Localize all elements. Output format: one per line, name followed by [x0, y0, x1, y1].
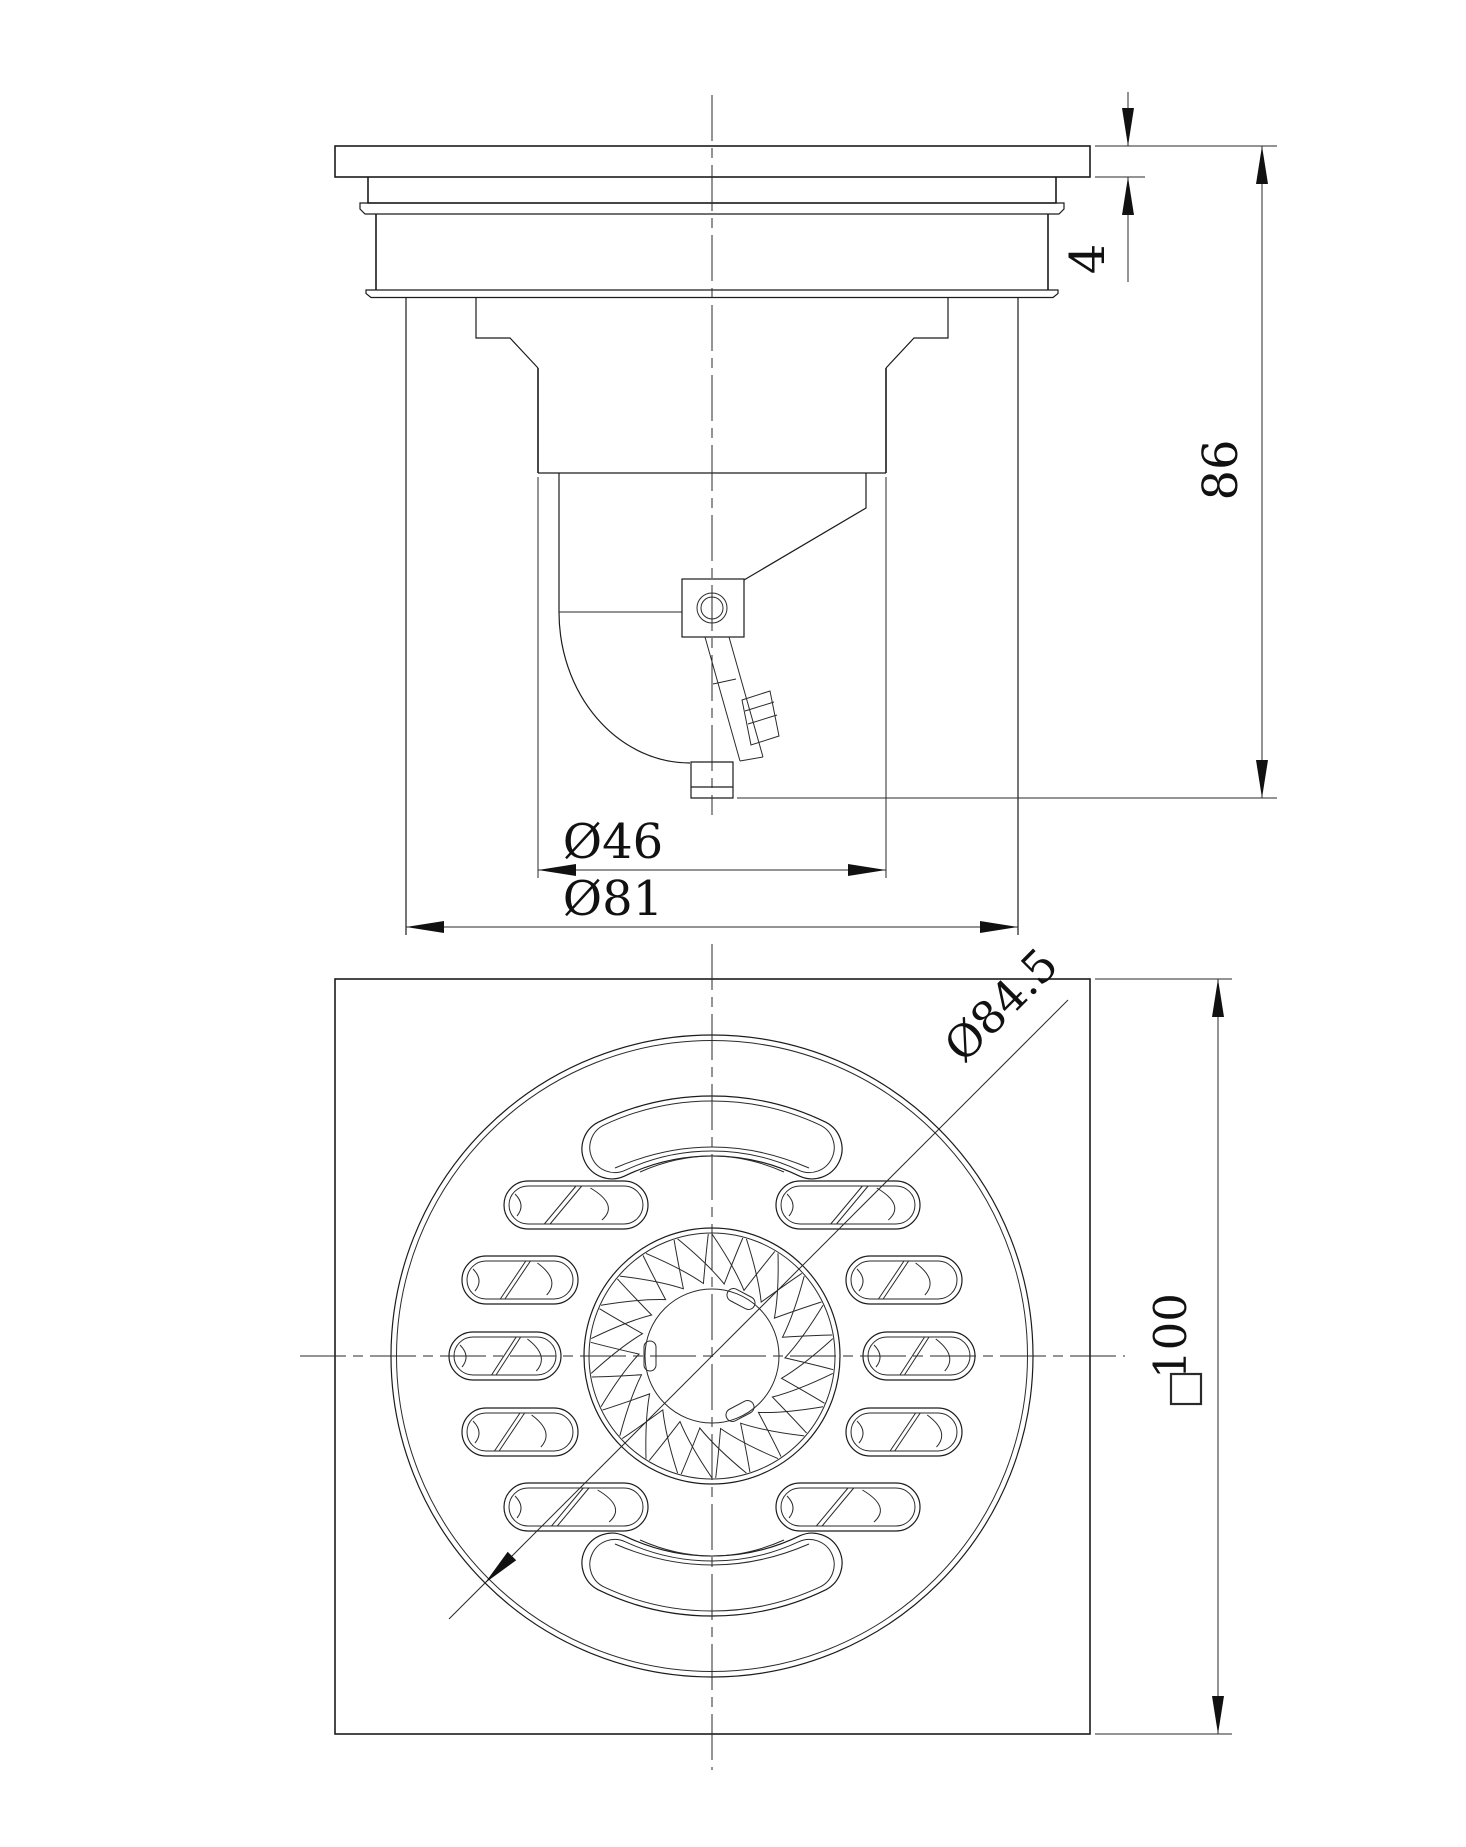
dim-outlet-diameter-label: Ø46 — [563, 814, 663, 870]
slot-capsule-inner — [467, 1261, 573, 1299]
slot-capsule — [504, 1483, 648, 1531]
slot-capsule-inner — [851, 1261, 957, 1299]
impeller-blade — [622, 1410, 677, 1473]
arrowhead — [848, 864, 886, 876]
dim-overall-height-label: 86 — [1193, 439, 1249, 500]
slot-fragment-curve — [874, 1339, 950, 1371]
extension-lines — [1095, 146, 1277, 177]
dim-body-diameter: Ø81 — [406, 871, 1018, 933]
impeller-blade — [712, 1234, 775, 1290]
impeller-blade — [601, 1255, 666, 1305]
impeller-blade — [649, 1422, 712, 1478]
arrowhead — [1256, 146, 1268, 184]
slot-fragment-edge — [552, 1488, 589, 1526]
arm-counterweight — [742, 691, 779, 745]
elbow-arc — [559, 612, 690, 763]
dim-overall-height: 86 — [737, 146, 1277, 798]
arrowhead — [1256, 760, 1268, 798]
slot-fragment-edge — [544, 1186, 581, 1224]
plan-centerlines — [300, 944, 1125, 1770]
dim-grate-diameter: Ø84.5 — [449, 938, 1068, 1619]
drawing-sheet: 4 86 Ø46 Ø81 — [0, 0, 1466, 1847]
slot-fragment-curve — [515, 1188, 608, 1220]
impeller-blade — [603, 1394, 650, 1459]
dim-flange-thickness-label: 4 — [1060, 244, 1116, 275]
slot-fragment-curve — [473, 1263, 552, 1295]
pivot-block — [682, 579, 744, 637]
slot-fragment-curve — [515, 1490, 616, 1522]
arrowhead — [1122, 108, 1134, 146]
impeller-blade — [758, 1407, 823, 1457]
dim-flange-thickness: 4 — [1060, 92, 1277, 282]
arrowhead — [406, 921, 444, 933]
slot-fragment-curve — [857, 1263, 930, 1295]
slot-capsule — [776, 1483, 920, 1531]
slot-capsule-inner — [781, 1186, 915, 1224]
impeller-blade — [746, 1239, 801, 1302]
slot-fragment-curve — [857, 1415, 942, 1447]
arrowhead — [1212, 1696, 1224, 1734]
drawing-canvas: 4 86 Ø46 Ø81 — [0, 0, 1466, 1847]
slot-fragment-curve — [787, 1188, 895, 1220]
arrowhead — [1122, 177, 1134, 215]
plan-view: Ø84.5 100 — [300, 938, 1232, 1770]
slot-fragment-curve — [787, 1490, 880, 1522]
slot-fragment-curve — [460, 1339, 541, 1371]
slot-fragment-curve — [473, 1415, 546, 1447]
arrowhead — [1212, 979, 1224, 1017]
dim-plate-size-label: 100 — [1144, 1293, 1197, 1379]
slot-capsule — [776, 1181, 920, 1229]
impeller-blade — [774, 1253, 821, 1318]
arrowhead — [485, 1552, 516, 1583]
hub-lug-upper — [725, 1286, 758, 1312]
slot-fragment-edge — [816, 1488, 853, 1526]
dim-grate-diameter-label: Ø84.5 — [934, 938, 1068, 1072]
slot-fragment-edge — [494, 1413, 524, 1451]
impeller-blade — [678, 1238, 743, 1284]
impeller-blade — [782, 1339, 833, 1404]
hub-lugs — [644, 1286, 757, 1424]
slot-fragment-edge — [878, 1261, 908, 1299]
slot-capsule-inner — [781, 1488, 915, 1526]
hub-lug-lower — [724, 1398, 757, 1424]
section-view: 4 86 Ø46 Ø81 — [335, 92, 1277, 935]
slot-capsule-inner — [509, 1186, 643, 1224]
slot-capsule-inner — [467, 1413, 573, 1451]
dim-body-diameter-label: Ø81 — [563, 871, 663, 927]
trap-right-funnel — [744, 473, 866, 580]
slot-capsule-inner — [509, 1488, 643, 1526]
impeller-blade — [681, 1428, 746, 1474]
leader-line — [449, 1000, 1068, 1619]
slot-fragment-edge — [500, 1261, 530, 1299]
arrowhead — [980, 921, 1018, 933]
slot-capsule — [504, 1181, 648, 1229]
impeller-blade — [591, 1309, 642, 1374]
flap-arm — [705, 637, 763, 761]
slot-fragment-edge — [890, 1413, 920, 1451]
